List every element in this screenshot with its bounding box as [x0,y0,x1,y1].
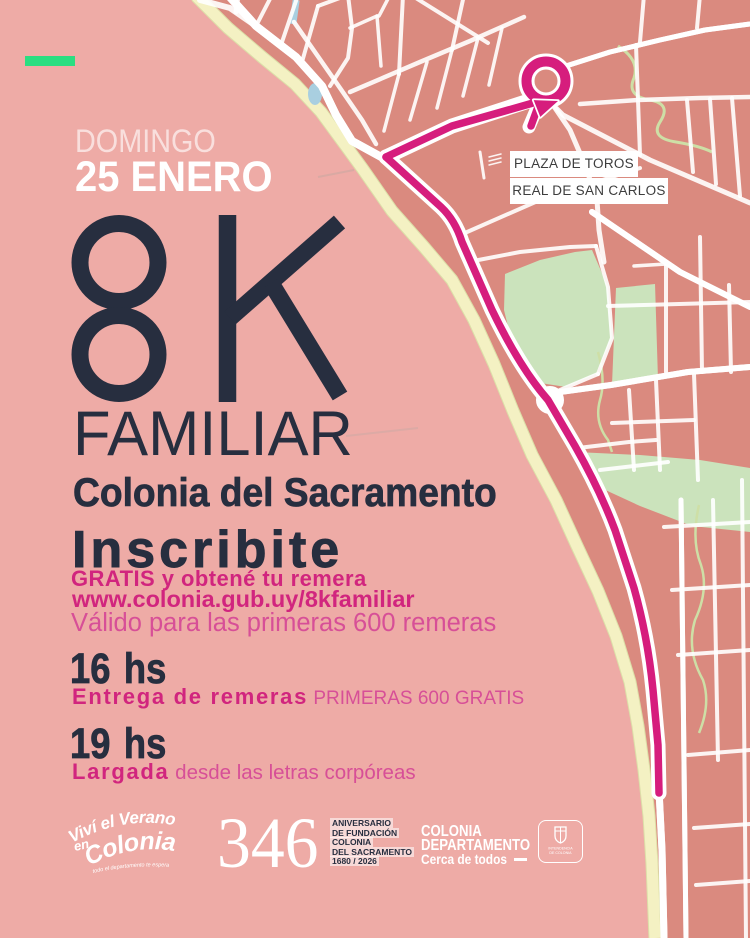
svg-text:DE COLONIA: DE COLONIA [549,851,572,855]
svg-text:INTENDENCIA: INTENDENCIA [548,847,573,851]
